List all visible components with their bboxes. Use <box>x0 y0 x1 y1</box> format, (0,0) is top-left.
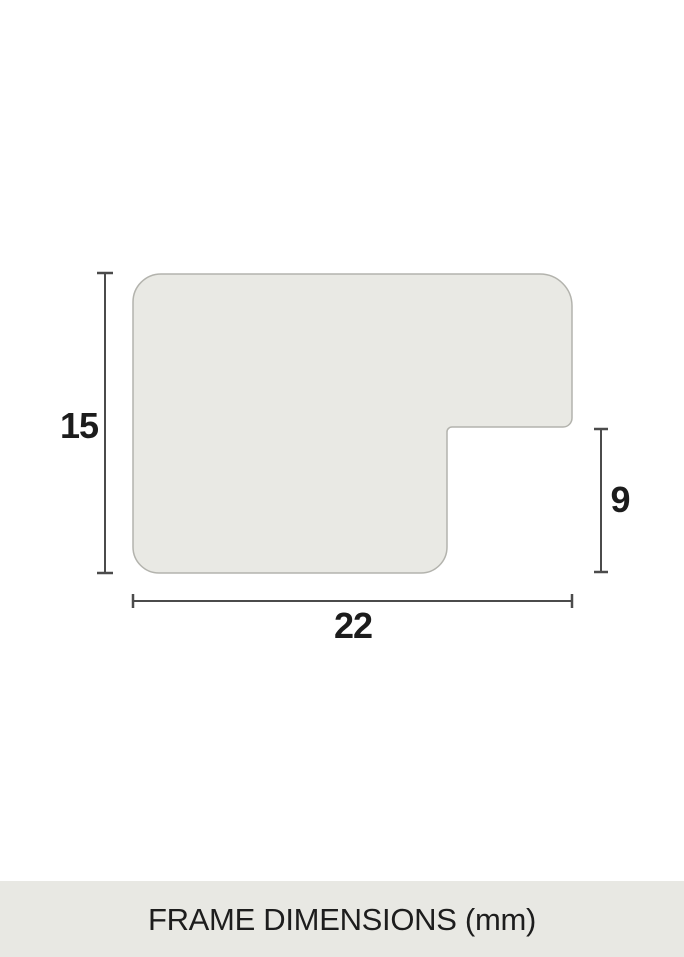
height-dimension-line <box>97 273 113 573</box>
frame-profile-diagram <box>0 0 684 957</box>
rabbet-dimension-line <box>594 429 608 572</box>
page: 15 9 22 FRAME DIMENSIONS (mm) <box>0 0 684 957</box>
caption-band: FRAME DIMENSIONS (mm) <box>0 881 684 957</box>
frame-profile-shape <box>133 274 572 573</box>
rabbet-dimension-label: 9 <box>610 482 629 518</box>
height-dimension-label: 15 <box>60 408 98 444</box>
caption-text: FRAME DIMENSIONS (mm) <box>148 904 536 935</box>
width-dimension-label: 22 <box>334 608 372 644</box>
